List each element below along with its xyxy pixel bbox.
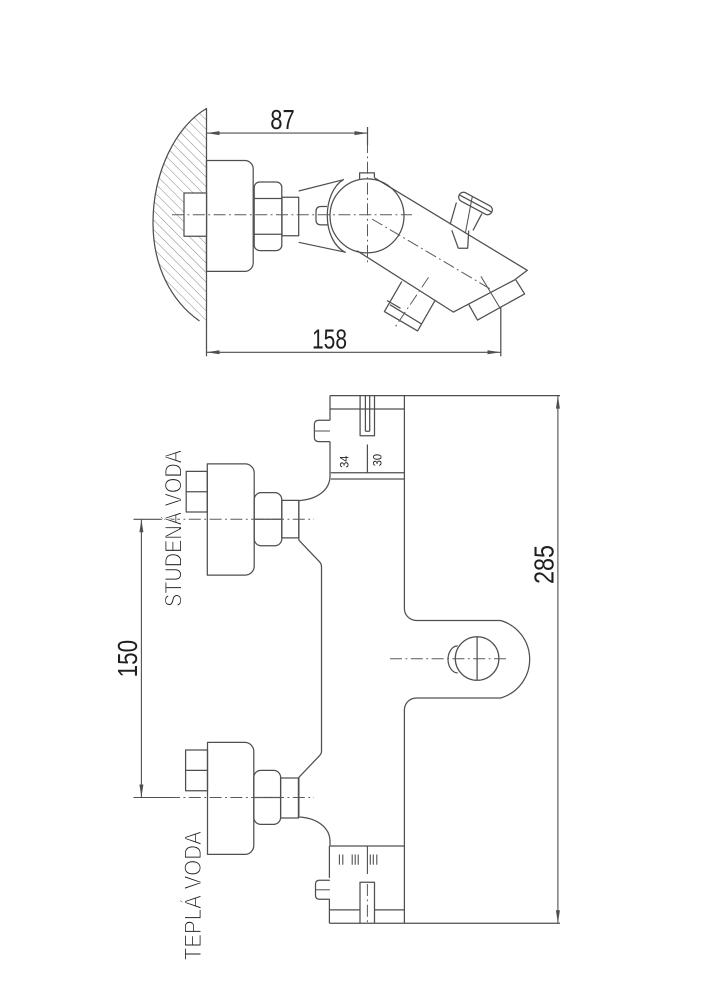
svg-text:STUDENÁ VODA: STUDENÁ VODA <box>161 450 188 607</box>
svg-text:87: 87 <box>270 104 295 135</box>
svg-text:285: 285 <box>529 545 560 584</box>
svg-text:TEPLÁ VODA: TEPLÁ VODA <box>180 831 207 960</box>
svg-text:30: 30 <box>370 454 384 467</box>
svg-text:34: 34 <box>337 455 351 468</box>
svg-text:150: 150 <box>112 640 143 678</box>
svg-text:158: 158 <box>312 323 347 354</box>
